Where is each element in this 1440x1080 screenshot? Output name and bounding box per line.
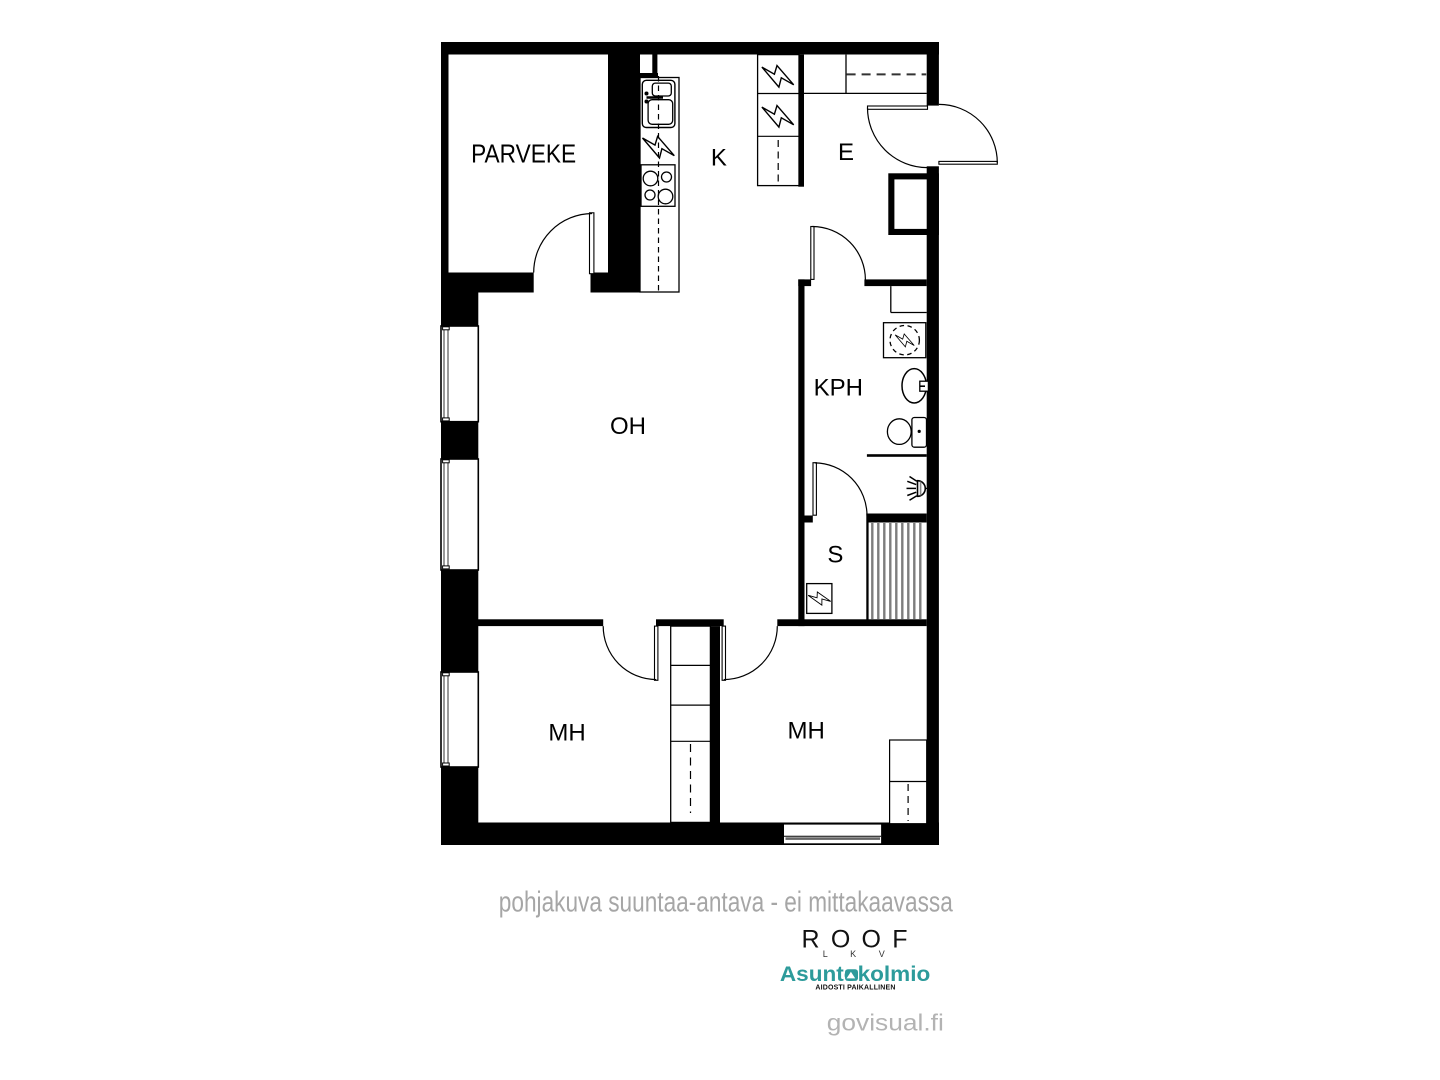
svg-text:OH: OH	[610, 413, 646, 440]
svg-text:K: K	[711, 144, 727, 171]
svg-text:E: E	[838, 139, 854, 166]
svg-text:MH: MH	[788, 718, 825, 745]
svg-text:AIDOSTI PAIKALLINEN: AIDOSTI PAIKALLINEN	[815, 985, 895, 992]
svg-text:govisual.fi: govisual.fi	[827, 1010, 944, 1036]
svg-text:S: S	[827, 541, 843, 568]
svg-text:MH: MH	[548, 720, 585, 747]
svg-text:pohjakuva suuntaa-antava - ei: pohjakuva suuntaa-antava - ei mittakaava…	[499, 887, 954, 919]
svg-text:PARVEKE: PARVEKE	[471, 139, 576, 169]
svg-text:KPH: KPH	[814, 375, 863, 402]
